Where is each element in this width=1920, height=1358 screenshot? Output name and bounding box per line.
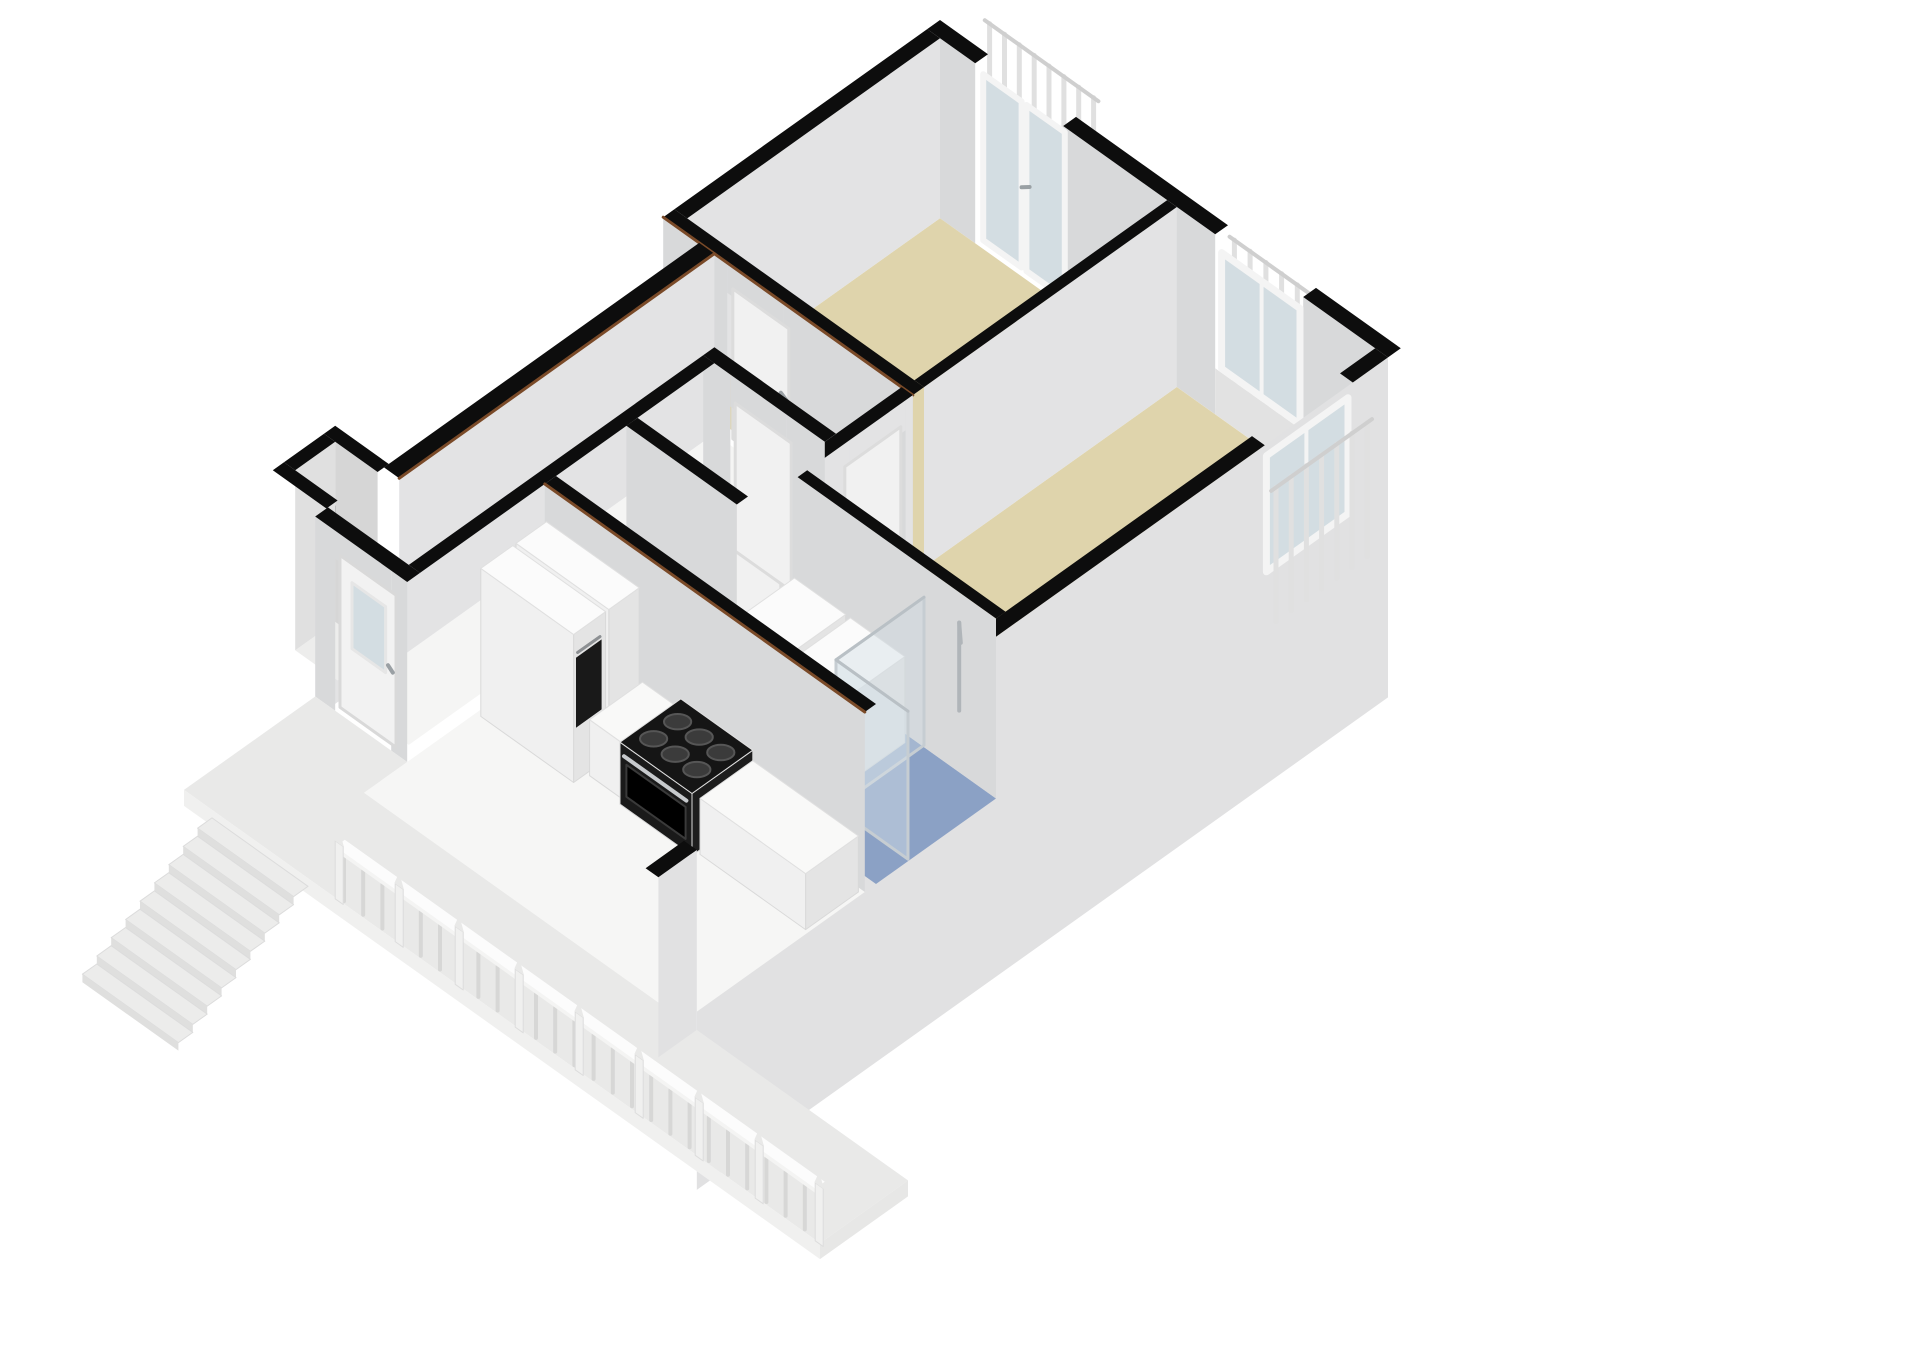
entrance-wall-face bbox=[315, 517, 335, 711]
terrace-railing-post bbox=[635, 1055, 643, 1119]
terrace-railing-post bbox=[515, 969, 523, 1033]
terrace-railing-post bbox=[455, 926, 463, 990]
burner bbox=[662, 747, 689, 762]
burner bbox=[707, 745, 734, 760]
terrace-railing-post bbox=[335, 841, 343, 905]
terrace-railing-post bbox=[395, 884, 403, 948]
terrace-railing-post bbox=[815, 1183, 823, 1247]
burner bbox=[686, 729, 713, 744]
se-wall-stub-face bbox=[658, 850, 696, 1057]
balcony-door-glass bbox=[983, 74, 1021, 267]
terrace-railing-post bbox=[575, 1012, 583, 1076]
floorplan-page bbox=[0, 0, 1920, 1358]
balcony-door-glass bbox=[1026, 105, 1064, 298]
burner bbox=[664, 714, 691, 729]
ne-wall-face bbox=[940, 38, 975, 243]
burner bbox=[683, 762, 710, 777]
floor-plan-canvas bbox=[0, 0, 1920, 1358]
burner bbox=[640, 731, 667, 746]
terrace-railing-post bbox=[755, 1140, 763, 1204]
terrace-railing-post bbox=[695, 1097, 703, 1161]
shower-head bbox=[959, 623, 961, 643]
